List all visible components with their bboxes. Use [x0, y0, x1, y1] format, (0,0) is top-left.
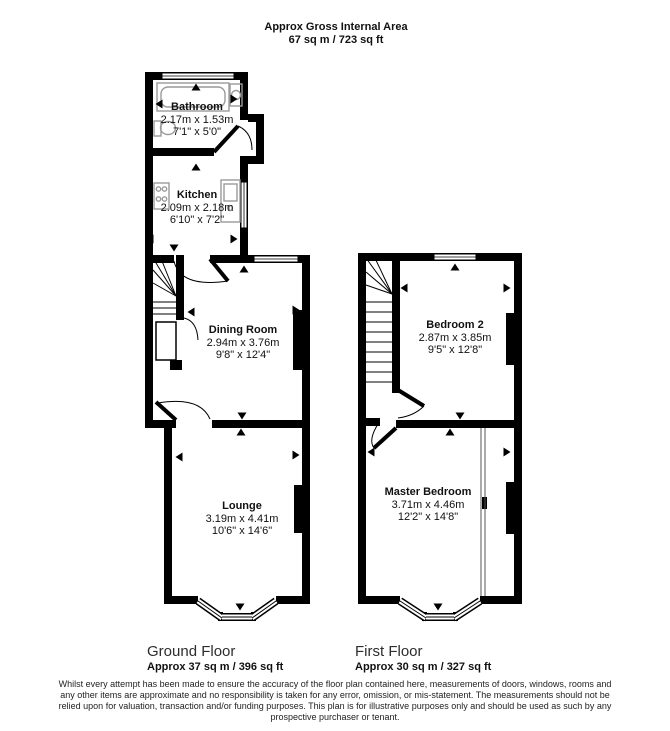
room-name: Master Bedroom: [385, 486, 472, 499]
first-stairs: [366, 256, 392, 382]
room-imperial: 7'1" x 5'0": [161, 126, 234, 139]
ground-floor-label: Ground Floor: [147, 643, 235, 660]
title-line: Approx Gross Internal Area: [264, 21, 407, 34]
first-floor-area: Approx 30 sq m / 327 sq ft: [355, 661, 491, 673]
room-imperial: 9'5" x 12'8": [419, 344, 492, 357]
disclaimer-text: Whilst every attempt has been made to en…: [0, 679, 670, 723]
floorplan-page: Approx Gross Internal Area 67 sq m / 723…: [0, 0, 670, 731]
disclaimer-line: Whilst every attempt has been made to en…: [0, 679, 670, 690]
first-windows: [400, 254, 480, 618]
room-imperial: 12'2" x 14'8": [385, 511, 472, 524]
room-label-dining: Dining Room 2.94m x 3.76m 9'8" x 12'4": [207, 324, 280, 362]
master-partition: [481, 428, 485, 596]
room-name: Kitchen: [161, 189, 234, 202]
room-imperial: 10'6" x 14'6": [206, 525, 279, 538]
room-label-bathroom: Bathroom 2.17m x 1.53m 7'1" x 5'0": [161, 101, 234, 139]
room-label-master-bedroom: Master Bedroom 3.71m x 4.46m 12'2" x 14'…: [385, 486, 472, 524]
room-label-lounge: Lounge 3.19m x 4.41m 10'6" x 14'6": [206, 500, 279, 538]
ground-doors: [156, 126, 252, 420]
room-metric: 2.17m x 1.53m: [161, 114, 234, 127]
first-walls: [358, 253, 522, 621]
ground-stairs: [153, 256, 176, 360]
first-floor-label: First Floor: [355, 643, 423, 660]
disclaimer-line: any other items are approximate and no r…: [0, 690, 670, 701]
room-label-bedroom2: Bedroom 2 2.87m x 3.85m 9'5" x 12'8": [419, 319, 492, 357]
room-name: Bathroom: [161, 101, 234, 114]
gross-internal-area-title: Approx Gross Internal Area 67 sq m / 723…: [264, 21, 407, 47]
room-label-kitchen: Kitchen 2.09m x 2.18m 6'10" x 7'2": [161, 189, 234, 227]
room-metric: 2.94m x 3.76m: [207, 337, 280, 350]
room-metric: 2.09m x 2.18m: [161, 202, 234, 215]
disclaimer-line: relied upon for valuation, transaction a…: [0, 701, 670, 712]
room-imperial: 9'8" x 12'4": [207, 349, 280, 362]
floorplan-drawing: [0, 0, 670, 731]
room-name: Dining Room: [207, 324, 280, 337]
first-floor-plan: [358, 253, 522, 621]
subtitle-line: 67 sq m / 723 sq ft: [264, 34, 407, 47]
disclaimer-line: prospective purchaser or tenant.: [0, 712, 670, 723]
room-name: Bedroom 2: [419, 319, 492, 332]
ground-floor-area: Approx 37 sq m / 396 sq ft: [147, 661, 283, 673]
room-name: Lounge: [206, 500, 279, 513]
room-imperial: 6'10" x 7'2": [161, 214, 234, 227]
room-metric: 2.87m x 3.85m: [419, 332, 492, 345]
room-metric: 3.71m x 4.46m: [385, 499, 472, 512]
room-metric: 3.19m x 4.41m: [206, 513, 279, 526]
